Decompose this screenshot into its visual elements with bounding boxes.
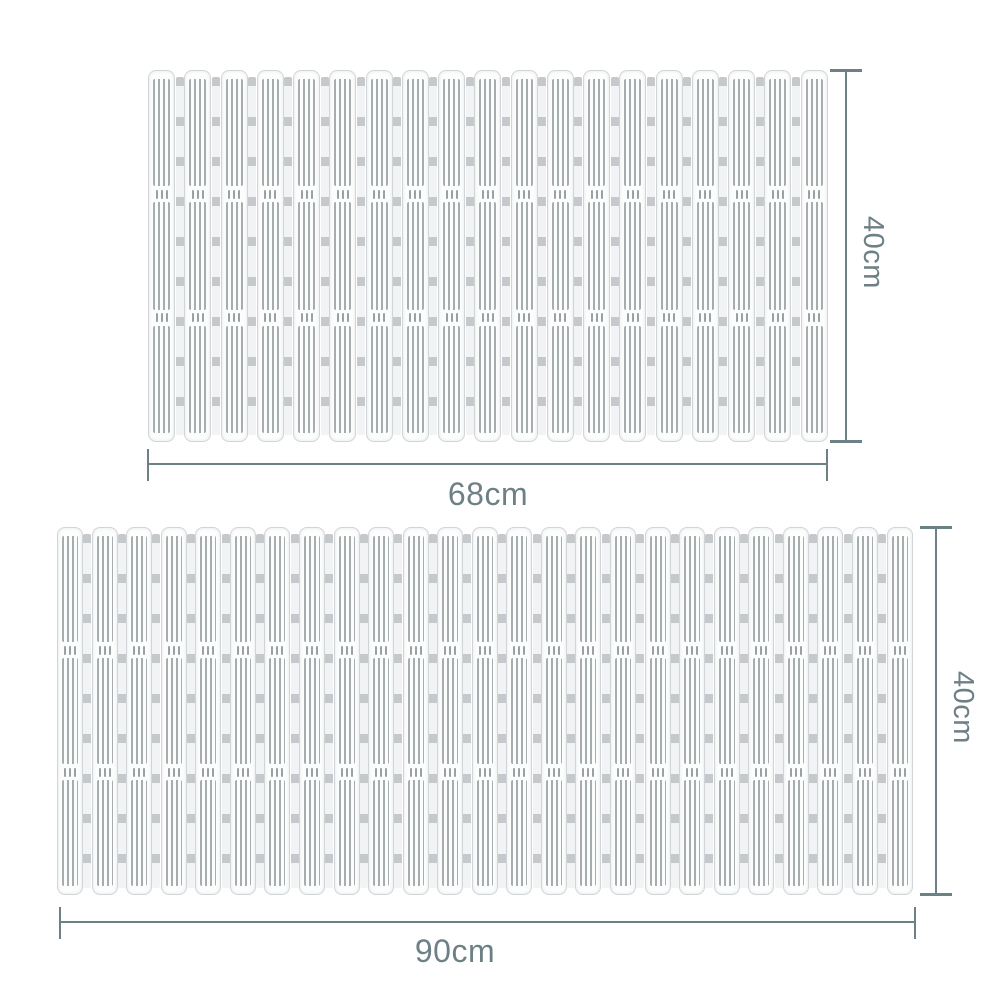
hinge-dash (306, 768, 308, 777)
slat-grooves (661, 79, 678, 186)
slat-grooves (442, 536, 458, 642)
hinge-dash (622, 646, 624, 655)
hinge-row (788, 764, 804, 780)
slat-connector-strip (291, 534, 299, 888)
slat-grooves (624, 326, 641, 433)
slat-grooves (516, 326, 533, 433)
slat-grooves (661, 326, 678, 433)
hinge-dash (420, 768, 422, 777)
slat-connector-strip (756, 77, 764, 435)
hinge-dash (415, 646, 417, 655)
hinge-dash (765, 768, 767, 777)
mat-slat (230, 527, 256, 895)
slat-grooves (511, 658, 527, 764)
slat-connector-strip (683, 77, 691, 435)
slat-grooves (661, 202, 678, 309)
width-dimension-line-small (148, 463, 828, 465)
hinge-dash (548, 646, 550, 655)
hinge-dash (212, 768, 214, 777)
slat-grooves (857, 780, 873, 886)
hinge-dash (228, 190, 230, 199)
slat-connector-strip (809, 534, 817, 888)
hinge-dash (242, 646, 244, 655)
hinge-dash (587, 646, 589, 655)
hinge-dash (451, 190, 453, 199)
hinge-row (131, 642, 147, 658)
hinge-dash (591, 190, 593, 199)
hinge-dash (202, 313, 204, 322)
mat-slat (801, 70, 828, 442)
slat-grooves (298, 79, 315, 186)
hinge-row (661, 186, 678, 202)
hinge-dash (380, 768, 382, 777)
hinge-row (334, 186, 351, 202)
hinge-row (697, 186, 714, 202)
slat-grooves (546, 780, 562, 886)
hinge-dash (109, 646, 111, 655)
hinge-dash (449, 646, 451, 655)
mat-slat (184, 70, 211, 442)
hinge-dash (64, 768, 66, 777)
hinge-dash (818, 313, 820, 322)
hinge-dash (212, 646, 214, 655)
height-dimension-line-small (845, 70, 847, 442)
hinge-dash (899, 768, 901, 777)
slat-grooves (304, 780, 320, 886)
slat-connector-strip (878, 534, 886, 888)
slat-grooves (769, 326, 786, 433)
hinge-dash (869, 646, 871, 655)
slat-grooves (650, 780, 666, 886)
slat-connector-strip (647, 77, 655, 435)
hinge-dash (342, 190, 344, 199)
hinge-dash (99, 646, 101, 655)
slat-grooves (371, 202, 388, 309)
hinge-dash (133, 768, 135, 777)
hinge-dash (736, 313, 738, 322)
hinge-dash (627, 768, 629, 777)
hinge-dash (564, 190, 566, 199)
slat-grooves (552, 202, 569, 309)
width-dimension-line-large (60, 921, 916, 923)
dimension-tick-right-large (914, 907, 916, 939)
hinge-dash (777, 313, 779, 322)
slat-grooves (339, 536, 355, 642)
hinge-dash (446, 190, 448, 199)
slat-grooves (822, 780, 838, 886)
mat-slat (583, 70, 610, 442)
hinge-dash (824, 646, 826, 655)
slat-grooves (588, 326, 605, 433)
hinge-dash (489, 646, 491, 655)
hinge-dash (591, 313, 593, 322)
hinge-dash (138, 768, 140, 777)
hinge-dash (721, 646, 723, 655)
hinge-dash (564, 313, 566, 322)
hinge-dash (741, 313, 743, 322)
hinge-dash (276, 646, 278, 655)
height-dimension-label-large: 40cm (946, 671, 979, 744)
slat-grooves (408, 658, 424, 764)
hinge-row (753, 642, 769, 658)
slat-grooves (442, 658, 458, 764)
hinge-row (166, 642, 182, 658)
hinge-dash (709, 190, 711, 199)
hinge-dash (668, 190, 670, 199)
slat-grooves (753, 536, 769, 642)
hinge-dash (178, 768, 180, 777)
hinge-dash (596, 190, 598, 199)
hinge-dash (709, 313, 711, 322)
slat-connector-strip (357, 77, 365, 435)
slat-grooves (733, 79, 750, 186)
hinge-row (269, 764, 285, 780)
mat-slat (403, 527, 429, 895)
hinge-dash (627, 313, 629, 322)
hinge-dash (409, 190, 411, 199)
slat-grooves (719, 780, 735, 886)
slat-connector-strip (740, 534, 748, 888)
slatted-mat-large (57, 527, 913, 895)
hinge-row (189, 186, 206, 202)
mat-slat (437, 527, 463, 895)
hinge-dash (523, 768, 525, 777)
hinge-dash (166, 190, 168, 199)
hinge-row (615, 764, 631, 780)
hinge-row (588, 186, 605, 202)
hinge-dash (829, 768, 831, 777)
slat-grooves (552, 79, 569, 186)
hinge-row (892, 642, 908, 658)
mat-slat (92, 527, 118, 895)
slat-connector-strip (502, 77, 510, 435)
hinge-dash (192, 190, 194, 199)
hinge-dash (347, 190, 349, 199)
slat-grooves (624, 79, 641, 186)
mat-slat (656, 70, 683, 442)
hinge-dash (617, 646, 619, 655)
hinge-dash (264, 313, 266, 322)
hinge-row (153, 310, 170, 326)
hinge-dash (301, 313, 303, 322)
hinge-dash (554, 313, 556, 322)
hinge-dash (168, 646, 170, 655)
hinge-dash (202, 768, 204, 777)
hinge-dash (237, 646, 239, 655)
slat-grooves (153, 202, 170, 309)
hinge-dash (173, 646, 175, 655)
hinge-dash (592, 646, 594, 655)
hinge-dash (410, 646, 412, 655)
hinge-dash (238, 190, 240, 199)
slat-grooves (650, 658, 666, 764)
height-dimension-line-large (935, 527, 937, 895)
slat-grooves (200, 536, 216, 642)
slat-grooves (588, 79, 605, 186)
hinge-dash (192, 313, 194, 322)
hinge-dash (415, 768, 417, 777)
slat-grooves (443, 79, 460, 186)
mat-slat (645, 527, 671, 895)
hinge-dash (652, 768, 654, 777)
slat-grooves (226, 326, 243, 433)
slat-connector-strip (212, 77, 220, 435)
slat-grooves (334, 326, 351, 433)
hinge-dash (420, 646, 422, 655)
slat-grooves (371, 79, 388, 186)
slat-grooves (684, 536, 700, 642)
hinge-dash (601, 190, 603, 199)
hinge-dash (69, 646, 71, 655)
hinge-dash (668, 313, 670, 322)
hinge-row (304, 764, 320, 780)
slat-grooves (443, 326, 460, 433)
mat-slat (472, 527, 498, 895)
mat-slat (679, 527, 705, 895)
slat-grooves (153, 326, 170, 433)
hinge-dash (373, 190, 375, 199)
hinge-dash (109, 768, 111, 777)
hinge-dash (772, 190, 774, 199)
slat-grooves (580, 536, 596, 642)
hinge-dash (518, 190, 520, 199)
slat-grooves (697, 79, 714, 186)
hinge-dash (166, 313, 168, 322)
hinge-row (684, 764, 700, 780)
hinge-dash (138, 646, 140, 655)
hinge-row (753, 764, 769, 780)
hinge-row (733, 186, 750, 202)
hinge-dash (513, 646, 515, 655)
hinge-dash (419, 313, 421, 322)
hinge-dash (311, 190, 313, 199)
hinge-dash (156, 190, 158, 199)
hinge-dash (375, 768, 377, 777)
hinge-dash (699, 313, 701, 322)
hinge-dash (316, 768, 318, 777)
hinge-dash (518, 646, 520, 655)
slat-grooves (200, 780, 216, 886)
hinge-dash (484, 646, 486, 655)
slat-grooves (442, 780, 458, 886)
mat-slat (368, 527, 394, 895)
hinge-dash (99, 768, 101, 777)
slat-grooves (733, 326, 750, 433)
hinge-row (857, 764, 873, 780)
hinge-dash (311, 313, 313, 322)
hinge-dash (449, 768, 451, 777)
hinge-dash (233, 190, 235, 199)
slat-grooves (769, 202, 786, 309)
hinge-dash (489, 768, 491, 777)
hinge-row (339, 642, 355, 658)
mat-slat (195, 527, 221, 895)
hinge-row (442, 764, 458, 780)
hinge-dash (657, 768, 659, 777)
hinge-dash (207, 768, 209, 777)
hinge-dash (341, 646, 343, 655)
hinge-dash (143, 646, 145, 655)
mat-slat (329, 70, 356, 442)
hinge-dash (518, 313, 520, 322)
hinge-row (650, 764, 666, 780)
slat-grooves (408, 536, 424, 642)
slat-grooves (719, 536, 735, 642)
hinge-dash (237, 768, 239, 777)
hinge-dash (704, 313, 706, 322)
hinge-dash (316, 646, 318, 655)
slat-grooves (806, 326, 823, 433)
hinge-dash (492, 313, 494, 322)
slat-grooves (235, 536, 251, 642)
hinge-dash (337, 313, 339, 322)
hinge-row (262, 310, 279, 326)
hinge-dash (813, 313, 815, 322)
slat-grooves (97, 536, 113, 642)
mat-slat (541, 527, 567, 895)
hinge-dash (347, 313, 349, 322)
hinge-dash (637, 190, 639, 199)
dimension-cap-bottom-large (920, 893, 952, 896)
hinge-dash (264, 190, 266, 199)
hinge-row (407, 310, 424, 326)
hinge-dash (410, 768, 412, 777)
width-dimension-label-large: 90cm (55, 933, 855, 970)
hinge-dash (351, 646, 353, 655)
hinge-row (516, 186, 533, 202)
hinge-dash (662, 646, 664, 655)
slat-grooves (552, 326, 569, 433)
slat-grooves (588, 202, 605, 309)
hinge-dash (553, 646, 555, 655)
hinge-row (822, 764, 838, 780)
slat-grooves (697, 202, 714, 309)
hinge-dash (301, 190, 303, 199)
slat-connector-strip (538, 77, 546, 435)
slat-grooves (479, 79, 496, 186)
mat-slat (474, 70, 501, 442)
hinge-row (511, 764, 527, 780)
hinge-dash (864, 646, 866, 655)
hinge-dash (637, 313, 639, 322)
slat-grooves (269, 658, 285, 764)
hinge-dash (69, 768, 71, 777)
hinge-dash (746, 190, 748, 199)
hinge-dash (782, 190, 784, 199)
hinge-dash (795, 768, 797, 777)
slat-grooves (443, 202, 460, 309)
slat-grooves (304, 658, 320, 764)
hinge-dash (346, 646, 348, 655)
hinge-row (235, 764, 251, 780)
hinge-dash (627, 646, 629, 655)
hinge-dash (746, 313, 748, 322)
hinge-dash (375, 646, 377, 655)
hinge-dash (178, 646, 180, 655)
slat-grooves (822, 658, 838, 764)
hinge-dash (269, 190, 271, 199)
hinge-row (442, 642, 458, 658)
dimension-cap-bottom-small (830, 440, 862, 443)
slat-connector-strip (636, 534, 644, 888)
mat-slat (57, 527, 83, 895)
hinge-row (131, 764, 147, 780)
slat-connector-strip (775, 534, 783, 888)
hinge-dash (419, 190, 421, 199)
mat-slat (148, 70, 175, 442)
hinge-row (477, 764, 493, 780)
hinge-dash (518, 768, 520, 777)
slat-grooves (298, 202, 315, 309)
hinge-dash (559, 190, 561, 199)
hinge-dash (904, 646, 906, 655)
hinge-dash (686, 768, 688, 777)
slat-connector-strip (498, 534, 506, 888)
slat-grooves (407, 202, 424, 309)
hinge-dash (380, 646, 382, 655)
hinge-dash (311, 768, 313, 777)
hinge-dash (663, 190, 665, 199)
hinge-dash (582, 646, 584, 655)
hinge-dash (691, 768, 693, 777)
hinge-dash (818, 190, 820, 199)
slat-grooves (189, 202, 206, 309)
hinge-dash (673, 313, 675, 322)
hinge-row (516, 310, 533, 326)
slat-grooves (615, 536, 631, 642)
slat-grooves (697, 326, 714, 433)
hinge-dash (207, 646, 209, 655)
slat-connector-strip (429, 534, 437, 888)
hinge-row (769, 310, 786, 326)
mat-slat (126, 527, 152, 895)
slat-connector-strip (844, 534, 852, 888)
slat-connector-strip (792, 77, 800, 435)
hinge-dash (548, 768, 550, 777)
slat-connector-strip (705, 534, 713, 888)
slat-connector-strip (393, 77, 401, 435)
slat-connector-strip (83, 534, 91, 888)
hinge-row (719, 764, 735, 780)
slat-grooves (62, 536, 78, 642)
slat-connector-strip (602, 534, 610, 888)
slat-grooves (684, 658, 700, 764)
hinge-row (62, 642, 78, 658)
slat-grooves (131, 658, 147, 764)
hinge-dash (627, 190, 629, 199)
mat-slat (511, 70, 538, 442)
hinge-dash (696, 768, 698, 777)
slat-grooves (373, 658, 389, 764)
hinge-dash (691, 646, 693, 655)
slat-grooves (235, 658, 251, 764)
width-dimension-label-small: 68cm (148, 476, 828, 513)
slat-grooves (131, 780, 147, 886)
hinge-dash (74, 768, 76, 777)
mat-slat (366, 70, 393, 442)
slat-grooves (269, 780, 285, 886)
hinge-dash (104, 646, 106, 655)
slat-connector-strip (187, 534, 195, 888)
slat-grooves (516, 79, 533, 186)
slat-connector-strip (325, 534, 333, 888)
slat-connector-strip (152, 534, 160, 888)
hinge-dash (228, 313, 230, 322)
hinge-dash (864, 768, 866, 777)
hinge-row (588, 310, 605, 326)
hinge-dash (813, 190, 815, 199)
hinge-dash (622, 768, 624, 777)
